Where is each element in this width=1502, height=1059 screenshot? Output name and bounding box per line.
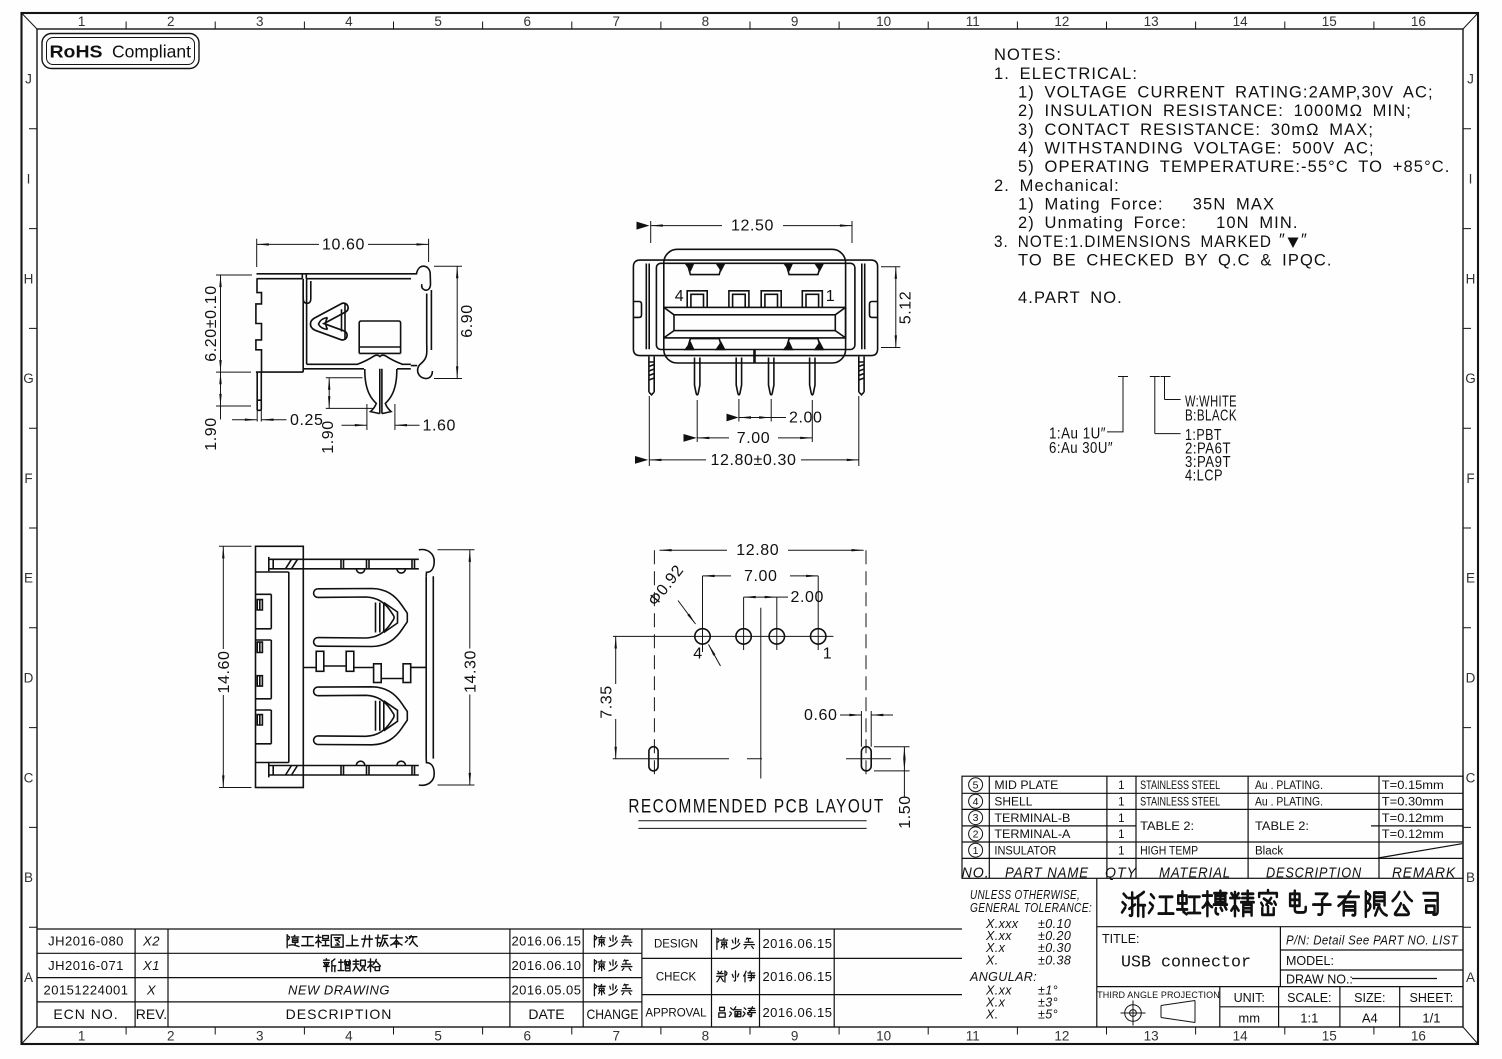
svg-text:CHANGE: CHANGE bbox=[587, 1006, 639, 1022]
svg-text:TITLE:: TITLE: bbox=[1102, 932, 1140, 946]
svg-text:2) Unmating Force: 10N MIN.: 2) Unmating Force: 10N MIN. bbox=[1018, 214, 1299, 232]
svg-text:SCALE:: SCALE: bbox=[1287, 991, 1331, 1005]
svg-text:5: 5 bbox=[434, 1029, 442, 1044]
svg-text:15: 15 bbox=[1322, 14, 1337, 29]
svg-text:JH2016-071: JH2016-071 bbox=[48, 958, 124, 973]
svg-text:F: F bbox=[1466, 471, 1474, 486]
svg-text:4: 4 bbox=[345, 14, 353, 29]
svg-text:1: 1 bbox=[1118, 845, 1124, 857]
svg-text:″: ″ bbox=[1301, 231, 1308, 249]
svg-text:12.80: 12.80 bbox=[736, 542, 779, 559]
svg-text:I: I bbox=[27, 172, 31, 187]
svg-text:2: 2 bbox=[973, 829, 979, 841]
svg-text:JH2016-080: JH2016-080 bbox=[48, 934, 124, 949]
svg-text:SIZE:: SIZE: bbox=[1354, 991, 1385, 1005]
svg-text:9: 9 bbox=[791, 1029, 799, 1044]
svg-text:A4: A4 bbox=[1362, 1011, 1378, 1026]
svg-text:2.00: 2.00 bbox=[789, 409, 823, 426]
svg-text:10: 10 bbox=[876, 1029, 891, 1044]
svg-text:J: J bbox=[25, 72, 32, 87]
svg-text:11: 11 bbox=[966, 14, 980, 29]
svg-text:H: H bbox=[1466, 271, 1476, 286]
svg-text:E: E bbox=[1466, 571, 1475, 586]
svg-text:G: G bbox=[23, 371, 34, 386]
svg-text:1: 1 bbox=[1118, 829, 1124, 841]
svg-text:X.: X. bbox=[985, 954, 999, 968]
svg-text:TERMINAL-A: TERMINAL-A bbox=[994, 829, 1070, 841]
svg-text:13: 13 bbox=[1144, 14, 1159, 29]
svg-text:1: 1 bbox=[78, 14, 86, 29]
svg-text:mm: mm bbox=[1238, 1011, 1260, 1026]
svg-text:T=0.15mm: T=0.15mm bbox=[1382, 780, 1444, 792]
svg-text:D: D bbox=[1466, 671, 1476, 686]
svg-text:4) WITHSTANDING VOLTAGE: 500V: 4) WITHSTANDING VOLTAGE: 500V AC; bbox=[1018, 140, 1375, 158]
svg-text:16: 16 bbox=[1411, 1029, 1426, 1044]
svg-text:SHEET:: SHEET: bbox=[1410, 991, 1454, 1005]
svg-text:10.60: 10.60 bbox=[322, 237, 365, 254]
svg-text:2016.06.15: 2016.06.15 bbox=[762, 936, 832, 951]
svg-text:STAINLESS STEEL: STAINLESS STEEL bbox=[1140, 780, 1220, 792]
svg-text:2016.05.05: 2016.05.05 bbox=[511, 982, 581, 997]
svg-text:T=0.12mm: T=0.12mm bbox=[1382, 829, 1444, 841]
svg-text:I: I bbox=[1469, 172, 1473, 187]
svg-text:14: 14 bbox=[1233, 14, 1249, 29]
svg-text:Compliant: Compliant bbox=[112, 42, 191, 62]
svg-text:ANGULAR:: ANGULAR: bbox=[969, 970, 1037, 984]
svg-text:″: ″ bbox=[1279, 231, 1286, 249]
svg-text:ECN NO.: ECN NO. bbox=[53, 1006, 118, 1022]
svg-text:MODEL:: MODEL: bbox=[1286, 954, 1334, 968]
svg-text:5) OPERATING TEMPERATURE:-55°C: 5) OPERATING TEMPERATURE:-55°C TO +85°C. bbox=[1018, 158, 1450, 176]
svg-text:4: 4 bbox=[693, 646, 703, 663]
svg-text:1: 1 bbox=[1118, 813, 1124, 825]
svg-text:DESIGN: DESIGN bbox=[654, 939, 698, 951]
svg-text:7.00: 7.00 bbox=[744, 568, 778, 585]
svg-text:A: A bbox=[1466, 970, 1475, 985]
svg-text:1) VOLTAGE CURRENT RATING:2AMP: 1) VOLTAGE CURRENT RATING:2AMP,30V AC; bbox=[1018, 84, 1434, 102]
svg-text:J: J bbox=[1467, 72, 1474, 87]
svg-text:14.60: 14.60 bbox=[216, 650, 233, 693]
svg-text:DESCRIPTION: DESCRIPTION bbox=[1266, 864, 1362, 881]
svg-text:3: 3 bbox=[973, 812, 979, 824]
svg-text:E: E bbox=[24, 571, 33, 586]
svg-text:X2: X2 bbox=[142, 934, 160, 949]
svg-text:12: 12 bbox=[1054, 1029, 1069, 1044]
svg-text:6.90: 6.90 bbox=[459, 304, 476, 338]
svg-text:T=0.30mm: T=0.30mm bbox=[1382, 797, 1444, 809]
svg-text:G: G bbox=[1465, 371, 1476, 386]
svg-text:UNIT:: UNIT: bbox=[1234, 991, 1265, 1005]
svg-text:1.90: 1.90 bbox=[203, 417, 220, 451]
svg-text:13: 13 bbox=[1144, 1029, 1159, 1044]
svg-text:9: 9 bbox=[791, 14, 799, 29]
svg-text:4.PART NO.: 4.PART NO. bbox=[1018, 289, 1123, 307]
svg-text:4: 4 bbox=[675, 288, 685, 305]
svg-text:14.30: 14.30 bbox=[462, 650, 479, 693]
svg-text:6:Au 30U″: 6:Au 30U″ bbox=[1049, 440, 1113, 457]
svg-text:1: 1 bbox=[1118, 780, 1124, 792]
svg-text:RoHS: RoHS bbox=[50, 42, 103, 62]
svg-text:6: 6 bbox=[523, 14, 531, 29]
svg-text:0.25: 0.25 bbox=[290, 412, 324, 429]
svg-text:T=0.12mm: T=0.12mm bbox=[1382, 813, 1444, 825]
svg-text:APPROVAL: APPROVAL bbox=[645, 1007, 707, 1019]
svg-text:SHELL: SHELL bbox=[994, 797, 1033, 809]
svg-text:RECOMMENDED PCB LAYOUT: RECOMMENDED PCB LAYOUT bbox=[628, 795, 884, 817]
svg-text:GENERAL TOLERANCE:: GENERAL TOLERANCE: bbox=[970, 901, 1092, 915]
svg-text:UNLESS OTHERWISE,: UNLESS OTHERWISE, bbox=[970, 888, 1080, 902]
svg-text:QTY: QTY bbox=[1105, 864, 1137, 881]
svg-text:F: F bbox=[24, 471, 32, 486]
svg-text:12.80±0.30: 12.80±0.30 bbox=[711, 452, 797, 469]
svg-text:0.60: 0.60 bbox=[804, 707, 838, 724]
svg-text:11: 11 bbox=[966, 1029, 980, 1044]
svg-text:B:BLACK: B:BLACK bbox=[1185, 408, 1237, 425]
svg-text:DRAW NO.:: DRAW NO.: bbox=[1286, 973, 1353, 987]
svg-text:2. Mechanical:: 2. Mechanical: bbox=[994, 177, 1120, 195]
svg-text:1: 1 bbox=[973, 845, 979, 857]
svg-text:3: 3 bbox=[256, 1029, 264, 1044]
svg-text:3) CONTACT RESISTANCE: 30mΩ MA: 3) CONTACT RESISTANCE: 30mΩ MAX; bbox=[1018, 121, 1374, 139]
svg-text:14: 14 bbox=[1233, 1029, 1249, 1044]
svg-text:4:LCP: 4:LCP bbox=[1185, 468, 1223, 485]
svg-text:TABLE 2:: TABLE 2: bbox=[1140, 821, 1194, 833]
svg-text:5: 5 bbox=[434, 14, 442, 29]
svg-text:1: 1 bbox=[823, 646, 833, 663]
svg-text:THIRD ANGLE PROJECTION: THIRD ANGLE PROJECTION bbox=[1097, 990, 1220, 1000]
svg-text:1:1: 1:1 bbox=[1300, 1011, 1318, 1026]
svg-text:MID PLATE: MID PLATE bbox=[994, 780, 1058, 792]
svg-text:Au . PLATING.: Au . PLATING. bbox=[1255, 797, 1323, 809]
svg-text:X: X bbox=[146, 982, 157, 997]
svg-text:20151224001: 20151224001 bbox=[43, 982, 128, 997]
svg-text:2) INSULATION RESISTANCE: 1000: 2) INSULATION RESISTANCE: 1000MΩ MIN; bbox=[1018, 102, 1412, 120]
svg-text:TABLE 2:: TABLE 2: bbox=[1255, 821, 1309, 833]
svg-text:NEW DRAWING: NEW DRAWING bbox=[288, 982, 390, 997]
svg-text:2016.06.15: 2016.06.15 bbox=[762, 969, 832, 984]
svg-text:7.35: 7.35 bbox=[598, 685, 615, 719]
svg-text:MATERIAL: MATERIAL bbox=[1159, 864, 1231, 881]
svg-text:Black: Black bbox=[1255, 845, 1283, 857]
svg-text:12.50: 12.50 bbox=[731, 218, 774, 235]
svg-text:15: 15 bbox=[1322, 1029, 1337, 1044]
svg-text:X1: X1 bbox=[142, 958, 160, 973]
svg-text:3. NOTE:1.DIMENSIONS MARKED: 3. NOTE:1.DIMENSIONS MARKED bbox=[994, 233, 1272, 251]
svg-text:1/1: 1/1 bbox=[1422, 1011, 1440, 1026]
svg-text:DESCRIPTION: DESCRIPTION bbox=[286, 1006, 393, 1022]
svg-text:4: 4 bbox=[973, 796, 979, 808]
svg-text:PART NAME: PART NAME bbox=[1005, 864, 1089, 881]
svg-text:TO BE CHECKED BY Q.C & IPQC.: TO BE CHECKED BY Q.C & IPQC. bbox=[1018, 252, 1333, 270]
svg-text:1.50: 1.50 bbox=[897, 795, 914, 829]
svg-text:1: 1 bbox=[1118, 797, 1124, 809]
svg-text:CHECK: CHECK bbox=[656, 972, 697, 984]
svg-text:1. ELECTRICAL:: 1. ELECTRICAL: bbox=[994, 65, 1138, 83]
svg-text:H: H bbox=[24, 271, 34, 286]
svg-text:16: 16 bbox=[1411, 14, 1426, 29]
svg-text:5.12: 5.12 bbox=[897, 291, 914, 325]
svg-text:±5°: ±5° bbox=[1038, 1008, 1058, 1022]
svg-text:1.60: 1.60 bbox=[423, 417, 457, 434]
svg-text:7.00: 7.00 bbox=[737, 430, 771, 447]
svg-text:2: 2 bbox=[167, 1029, 175, 1044]
svg-text:B: B bbox=[1466, 870, 1475, 885]
svg-text:2: 2 bbox=[167, 14, 175, 29]
svg-text:TERMINAL-B: TERMINAL-B bbox=[994, 813, 1070, 825]
svg-text:NOTES:: NOTES: bbox=[994, 46, 1062, 64]
svg-text:6: 6 bbox=[523, 1029, 531, 1044]
svg-text:2016.06.15: 2016.06.15 bbox=[762, 1005, 832, 1020]
svg-text:X.: X. bbox=[985, 1008, 999, 1022]
svg-text:A: A bbox=[24, 970, 33, 985]
svg-text:2016.06.10: 2016.06.10 bbox=[511, 958, 581, 973]
svg-text:8: 8 bbox=[702, 14, 710, 29]
svg-text:C: C bbox=[24, 770, 34, 785]
svg-text:D: D bbox=[24, 671, 34, 686]
svg-text:Au . PLATING.: Au . PLATING. bbox=[1255, 780, 1323, 792]
svg-text:7: 7 bbox=[613, 1029, 621, 1044]
svg-text:7: 7 bbox=[613, 14, 621, 29]
svg-text:4: 4 bbox=[345, 1029, 353, 1044]
svg-text:6.20±0.10: 6.20±0.10 bbox=[203, 285, 220, 361]
svg-text:3: 3 bbox=[256, 14, 264, 29]
svg-text:±0.38: ±0.38 bbox=[1038, 954, 1071, 968]
svg-text:2016.06.15: 2016.06.15 bbox=[511, 934, 581, 949]
svg-text:REV.: REV. bbox=[136, 1006, 167, 1022]
svg-text:B: B bbox=[24, 870, 33, 885]
svg-text:1: 1 bbox=[78, 1029, 86, 1044]
svg-text:C: C bbox=[1466, 770, 1476, 785]
svg-text:USB connector: USB connector bbox=[1121, 954, 1251, 973]
svg-text:12: 12 bbox=[1054, 14, 1069, 29]
svg-text:INSULATOR: INSULATOR bbox=[994, 845, 1056, 857]
svg-text:STAINLESS STEEL: STAINLESS STEEL bbox=[1140, 797, 1220, 809]
svg-text:2.00: 2.00 bbox=[791, 589, 825, 606]
svg-text:5: 5 bbox=[973, 779, 979, 791]
svg-text:1) Mating Force: 35N MAX: 1) Mating Force: 35N MAX bbox=[1018, 196, 1275, 214]
svg-text:10: 10 bbox=[876, 14, 891, 29]
svg-text:8: 8 bbox=[702, 1029, 710, 1044]
svg-text:1: 1 bbox=[826, 288, 836, 305]
svg-text:P/N: Detail See PART NO. L: P/N: Detail See PART NO. LIST bbox=[1286, 934, 1459, 948]
svg-text:HIGH TEMP: HIGH TEMP bbox=[1140, 845, 1198, 857]
svg-text:REMARK: REMARK bbox=[1392, 864, 1456, 881]
svg-text:DATE: DATE bbox=[528, 1006, 564, 1022]
svg-text:NO.: NO. bbox=[962, 864, 990, 881]
